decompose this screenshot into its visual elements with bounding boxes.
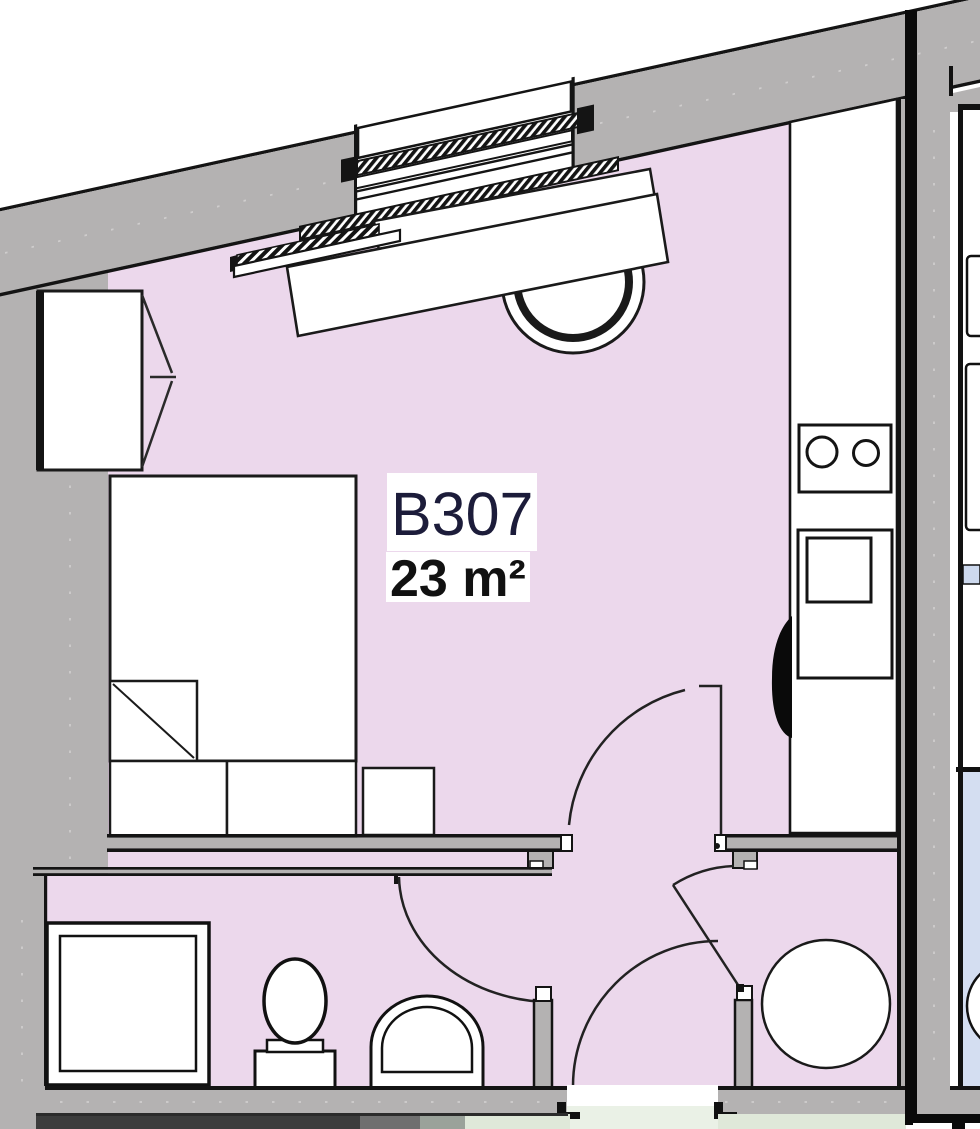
svg-text:B307: B307 xyxy=(391,480,533,548)
svg-text:23 m²: 23 m² xyxy=(390,550,526,608)
